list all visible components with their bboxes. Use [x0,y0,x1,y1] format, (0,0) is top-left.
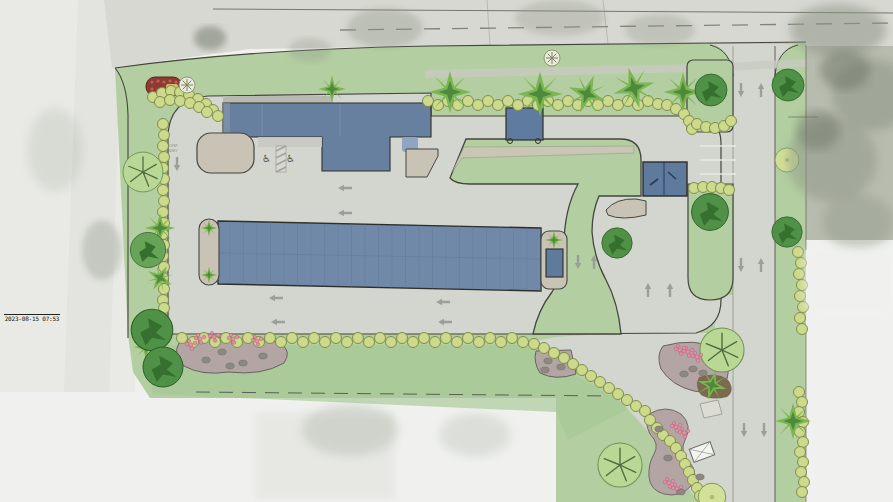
shrub [175,96,186,107]
drive-through-canopy [506,108,543,140]
south-sidewalk [258,137,322,147]
boulder [664,455,672,461]
shrub [513,100,524,111]
photo-tree-blob [302,404,398,456]
shrub [158,141,169,152]
shrub [159,284,170,295]
shrub [483,96,494,107]
star-plant [544,50,560,66]
accent-plant [201,267,218,284]
boulder [677,489,685,495]
photo-tree-canopy [347,8,423,48]
shrub [643,96,654,107]
shrub [158,207,169,218]
shade-tree [143,347,183,387]
shade-tree [130,232,165,267]
boulder [202,357,210,363]
shrub [441,333,452,344]
shrub [507,333,518,344]
shrub [485,333,496,344]
shrub [794,387,805,398]
shrub [463,96,474,107]
boulder [239,360,247,366]
site-plan-rendering: ♿ ♿ ONE WAY [0,0,893,502]
shrub [309,333,320,344]
shrub [243,333,254,344]
boulder [689,366,697,372]
shrub [798,437,809,448]
shrub [433,100,444,111]
palm-tree [775,403,811,439]
shrub [603,96,614,107]
shrub [453,100,464,111]
shrub [158,185,169,196]
shrub [795,291,806,302]
east-drive [733,44,775,502]
shade-tree [131,309,173,351]
shrub [794,269,805,280]
shrub [797,397,808,408]
shrub [331,333,342,344]
shrub [213,111,224,122]
boulder [259,353,267,359]
shrub [474,337,485,348]
shrub [798,457,809,468]
boulder [699,370,707,376]
boulder [218,349,226,355]
shade-tree [602,228,632,258]
shrub [158,119,169,130]
shrub [159,152,170,163]
shrub [159,196,170,207]
shrub [473,100,484,111]
shrub [320,337,331,348]
storage-unit [546,249,563,277]
shrub [419,333,430,344]
shrub [397,333,408,344]
shrub [353,333,364,344]
boulder [557,364,565,370]
photo-tree-canopy [820,50,870,90]
ornamental-tree [700,328,744,372]
shrub [724,185,735,196]
shrub [423,96,434,107]
shrub [287,333,298,344]
shrub [408,337,419,348]
shrub [799,477,810,488]
photo-tree-blob [27,108,83,192]
photo-tree-canopy [822,194,893,250]
site-plan-canvas: ♿ ♿ ONE WAY [0,0,893,502]
shade-tree [692,194,729,231]
accessible-parking-icon: ♿ [262,153,271,164]
shrub [613,100,624,111]
shrub [797,324,808,335]
shrub [797,280,808,291]
shade-tree [772,69,804,101]
shrub [298,337,309,348]
shrub [496,337,507,348]
photo-tree-blob [439,413,511,457]
palm-tree [319,76,346,103]
shrub [159,130,170,141]
shrub [796,258,807,269]
boulder [680,371,688,377]
boulder [696,474,704,480]
ornamental-tree [123,152,163,192]
shrub [797,487,808,498]
shrub [276,337,287,348]
star-plant [179,77,195,93]
accent-plant [201,220,218,237]
shrub [549,348,560,359]
photo-tree-canopy [625,14,695,46]
shrub [452,337,463,348]
dumpster-enclosure [643,162,687,196]
ornamental-tree [598,443,642,487]
shrub [375,333,386,344]
shrub [364,337,375,348]
photo-tree-canopy [790,4,886,56]
shrub [553,100,564,111]
shrub [155,97,166,108]
shrub [539,343,550,354]
shrub [165,95,176,106]
shrub [463,333,474,344]
photo-tree-blob [82,220,122,280]
one-way-label-line2: WAY [169,148,178,153]
shrub [386,337,397,348]
photo-fade [806,250,893,310]
timestamp-overlay: 2023-08-15 07:53 [4,314,60,323]
photo-tree-canopy [515,0,605,36]
photo-tree-canopy [288,38,332,62]
photo-tree-canopy [796,110,840,150]
boulder [226,363,234,369]
photo-tree-canopy [194,26,226,50]
shrub [493,100,504,111]
boulder [655,426,663,432]
shrub [265,333,276,344]
shrub [796,467,807,478]
shrub [342,337,353,348]
accent-plant [545,231,563,249]
palm-tree [518,72,563,117]
shrub [529,339,540,350]
shrub [503,96,514,107]
shrub [793,247,804,258]
shrub [177,333,188,344]
shade-tree [772,217,802,247]
shade-tree [695,74,727,106]
shrub [518,337,529,348]
shrub [795,447,806,458]
shrub [795,313,806,324]
shrub [202,107,213,118]
shrub [430,337,441,348]
entry-canopy [197,133,254,173]
boulder [541,367,549,373]
accessible-parking-icon: ♿ [286,153,295,164]
shrub [726,116,737,127]
boulder [544,358,552,364]
palm-tree [429,71,471,113]
roof-highlight [223,103,230,137]
